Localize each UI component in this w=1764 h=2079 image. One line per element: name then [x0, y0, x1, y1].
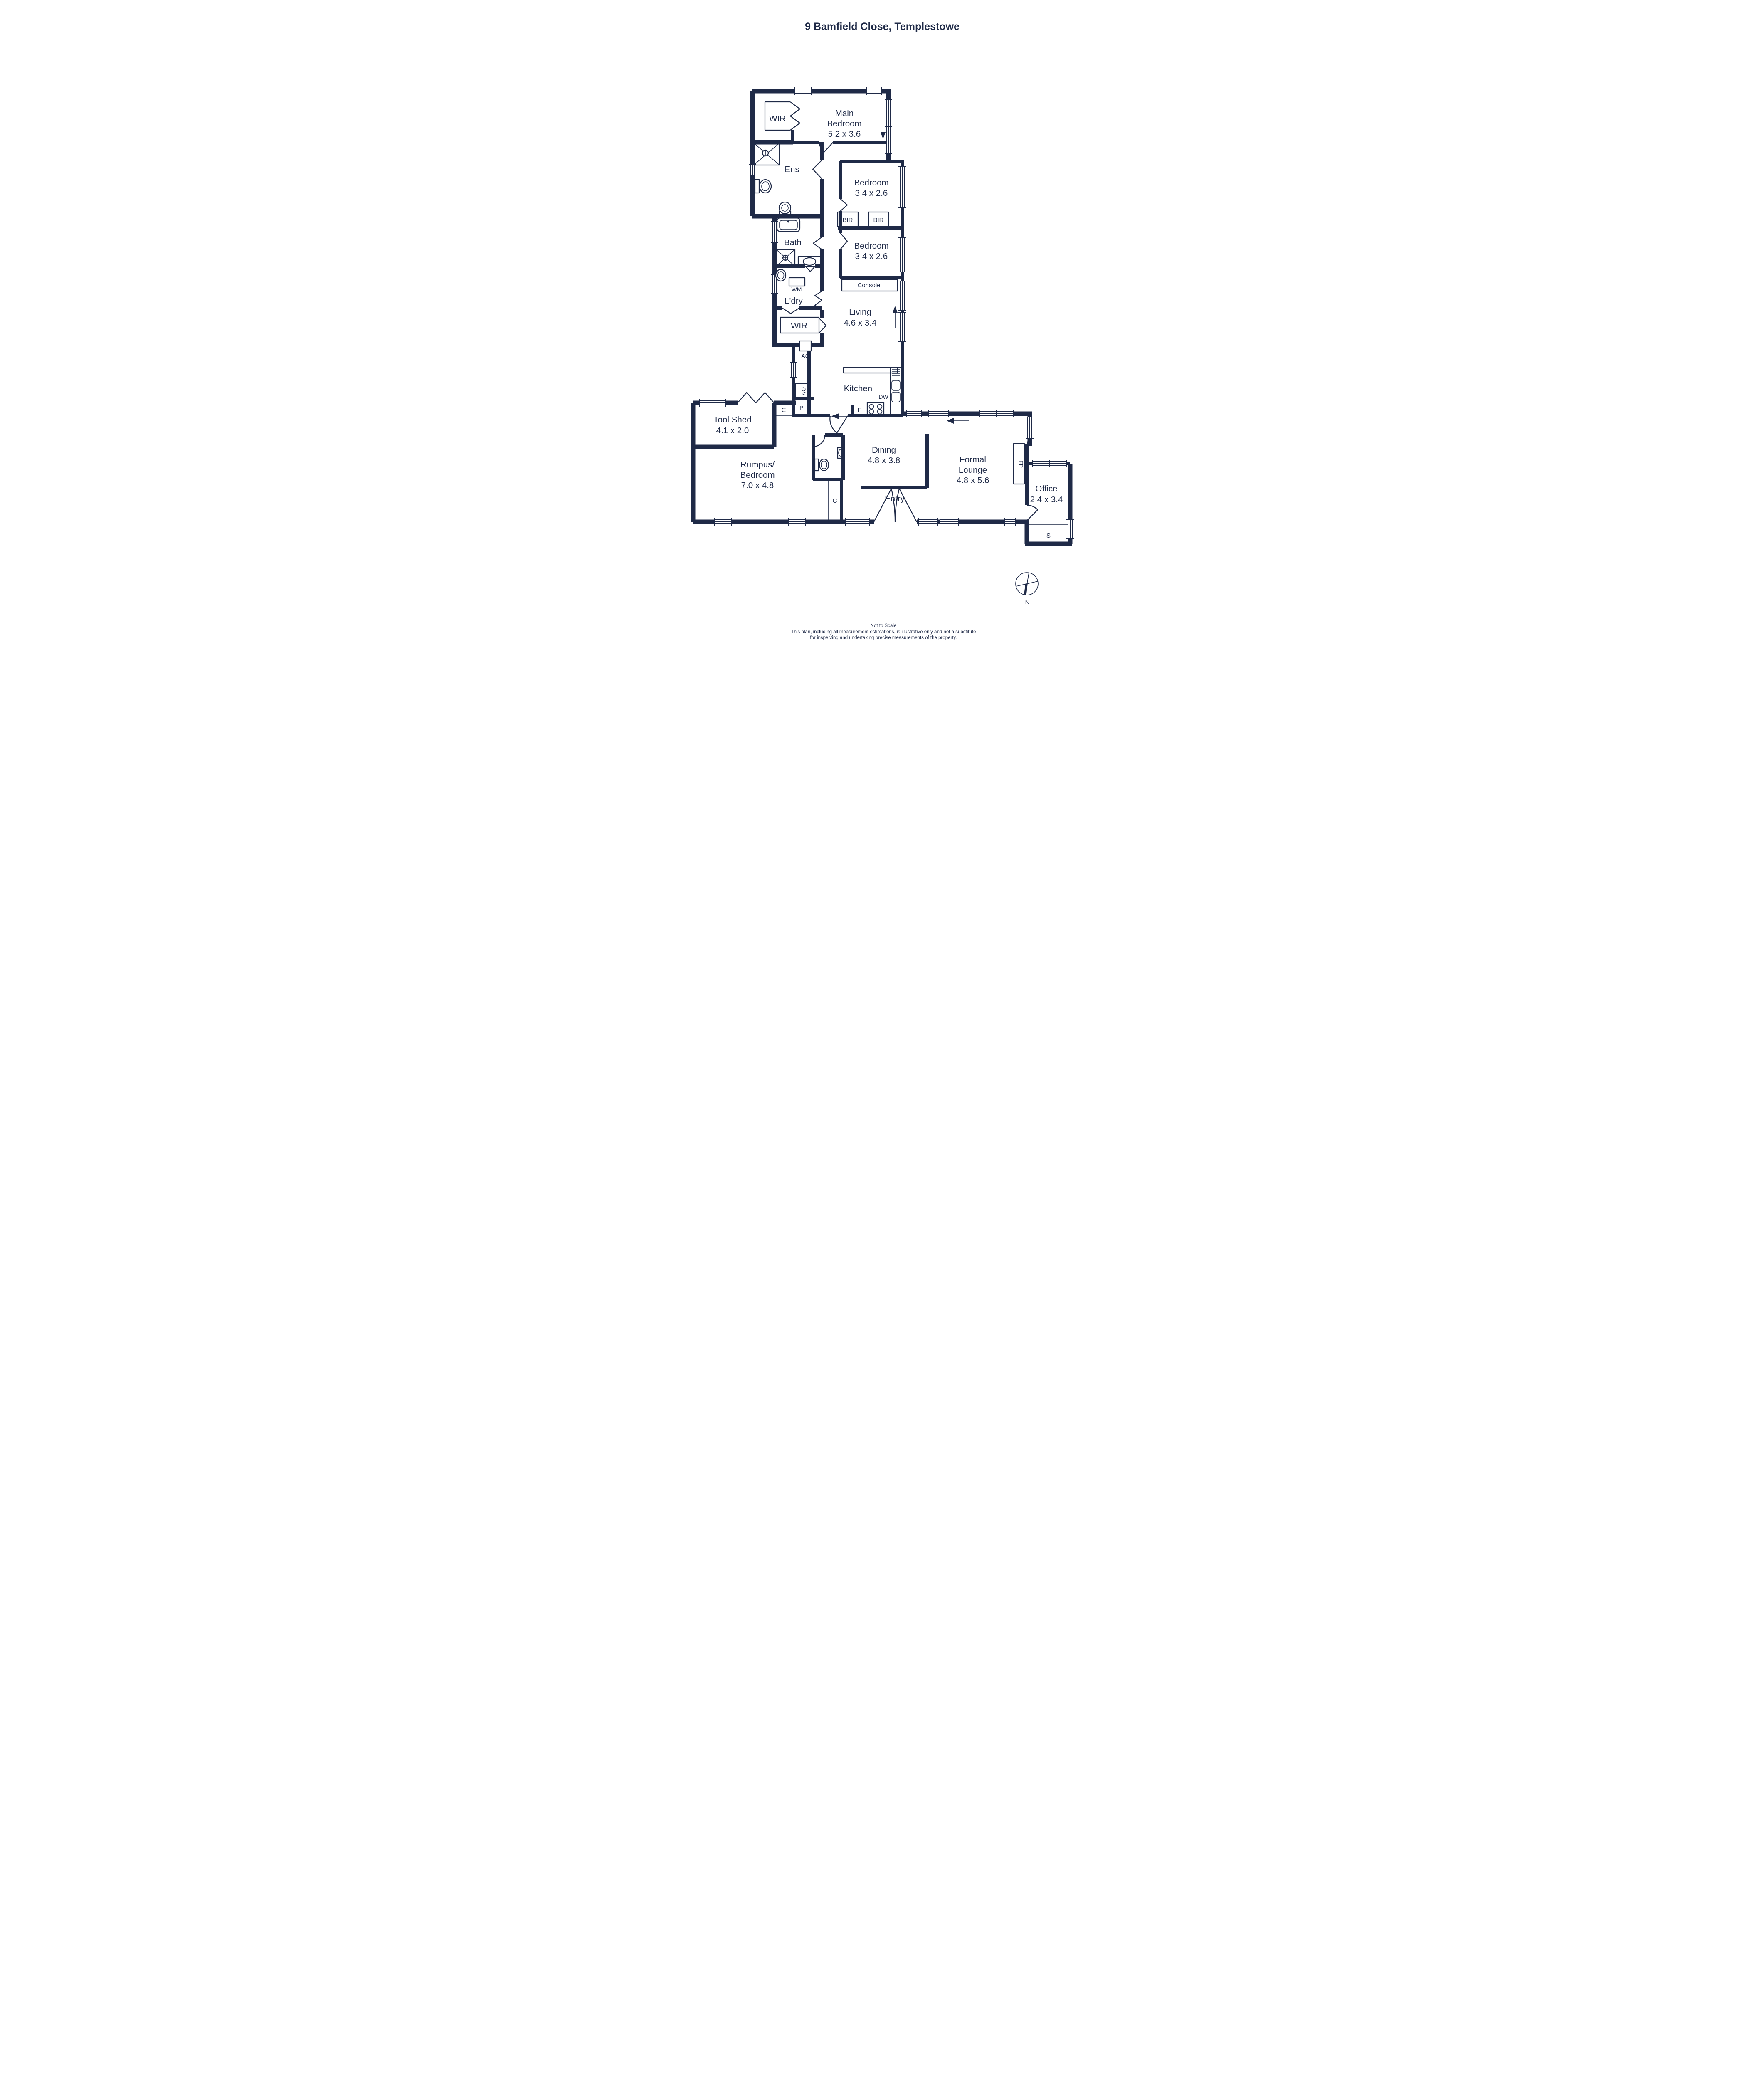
label-bir-right: BIR [873, 217, 883, 224]
wir-hall-door [819, 318, 826, 333]
label-rumpus-1: Rumpus/ [740, 460, 774, 469]
label-entry: Entry [885, 494, 905, 504]
window [919, 518, 938, 526]
label-fireplace: FP [1018, 460, 1024, 468]
arrow-up-living [893, 306, 898, 328]
window [1005, 518, 1015, 526]
window [1026, 417, 1034, 438]
label-laundry: L'dry [785, 296, 803, 306]
label-cupboard-rumpus: C [832, 497, 837, 504]
floor-plan-sheet: 9 Bamfield Close, Templestowe [654, 0, 1111, 647]
window [715, 518, 732, 526]
window [790, 363, 797, 377]
ac-unit [799, 341, 811, 351]
arrow-down-main-bedroom [881, 118, 886, 139]
label-wir-main: WIR [769, 114, 786, 123]
window [979, 410, 1013, 417]
footer-not-to-scale: Not to Scale [870, 623, 896, 628]
label-lounge-2: Lounge [958, 465, 987, 475]
tool-shed-door [738, 393, 774, 403]
label-office: Office [1035, 484, 1057, 494]
window [1033, 460, 1066, 467]
window [898, 312, 906, 342]
label-main-bedroom-1: Main [835, 109, 853, 118]
label-bir-left: BIR [842, 217, 853, 224]
toilet-wc [815, 459, 829, 471]
label-kitchen: Kitchen [844, 384, 872, 393]
compass-north-label: N [1025, 599, 1029, 606]
toilet-bath [776, 269, 786, 281]
window [885, 100, 892, 154]
window [907, 410, 921, 417]
label-fridge: F [857, 407, 861, 414]
sink-dishwasher [891, 368, 901, 416]
label-bedroom-upper-dims: 3.4 x 2.6 [855, 188, 888, 198]
toilet-ens [755, 180, 771, 193]
label-cupboard-hall: C [781, 407, 786, 414]
shower-ens [754, 143, 780, 165]
label-main-bedroom-2: Bedroom [827, 119, 861, 128]
compass: N [1016, 573, 1038, 606]
window [749, 165, 756, 175]
label-tool-shed: Tool Shed [713, 415, 751, 425]
kitchen-counter [844, 368, 898, 373]
window [788, 518, 805, 526]
office-door [1027, 505, 1038, 521]
bath-door [813, 237, 822, 249]
footer: Not to Scale This plan, including all me… [791, 623, 976, 640]
shower-bath [776, 249, 795, 266]
label-lounge-dims: 4.8 x 5.6 [956, 476, 989, 485]
wc-door [813, 435, 825, 447]
label-bedroom-lower-dims: 3.4 x 2.6 [855, 252, 888, 261]
label-living-dims: 4.6 x 3.4 [844, 318, 876, 328]
label-store: S [1046, 532, 1050, 539]
laundry-inner-door [782, 308, 799, 314]
wir-main-door [790, 102, 800, 130]
window [898, 281, 906, 310]
label-bath: Bath [784, 238, 801, 247]
label-rumpus-dims: 7.0 x 4.8 [741, 481, 774, 490]
label-dishwasher: DW [878, 393, 888, 400]
page-title: 9 Bamfield Close, Templestowe [805, 21, 960, 32]
window [845, 518, 870, 526]
window [898, 166, 906, 208]
bedroom-lower-door [840, 233, 847, 249]
footer-disclaimer-2: for inspecting and undertaking precise m… [810, 635, 957, 640]
window [898, 237, 906, 272]
label-wir-hall: WIR [791, 321, 807, 331]
label-main-bedroom-dims: 5.2 x 3.6 [828, 129, 861, 139]
label-dining-dims: 4.8 x 3.8 [867, 456, 900, 465]
window [866, 87, 882, 95]
window [940, 518, 959, 526]
window [699, 399, 726, 407]
cooktop [867, 402, 884, 416]
label-oven: OV [800, 387, 807, 396]
label-dining: Dining [871, 445, 896, 455]
label-bedroom-lower: Bedroom [854, 241, 888, 251]
entry-double-door [874, 489, 917, 522]
label-tool-shed-dims: 4.1 x 2.0 [716, 426, 749, 435]
floor-plan: 9 Bamfield Close, Templestowe [654, 0, 1111, 647]
label-lounge-1: Formal [960, 455, 986, 464]
label-pantry: P [799, 405, 803, 412]
label-bedroom-upper: Bedroom [854, 178, 888, 188]
arrow-left-lounge [947, 418, 969, 424]
label-ens: Ens [785, 165, 799, 174]
bedroom-upper-door [840, 199, 847, 211]
window [795, 87, 811, 95]
label-living: Living [849, 307, 871, 317]
bathtub [777, 218, 800, 232]
window [1066, 520, 1074, 539]
ens-door [813, 160, 822, 179]
label-console: Console [857, 282, 880, 289]
footer-disclaimer-1: This plan, including all measurement est… [791, 630, 976, 635]
washing-machine [789, 278, 805, 286]
label-office-dims: 2.4 x 3.4 [1030, 495, 1063, 504]
room-labels: WIR Main Bedroom 5.2 x 3.6 Ens Bedroom 3… [713, 109, 1063, 539]
label-rumpus-2: Bedroom [740, 470, 775, 480]
label-ac: AC [801, 353, 809, 359]
label-wm: WM [791, 286, 802, 293]
window [929, 410, 948, 417]
